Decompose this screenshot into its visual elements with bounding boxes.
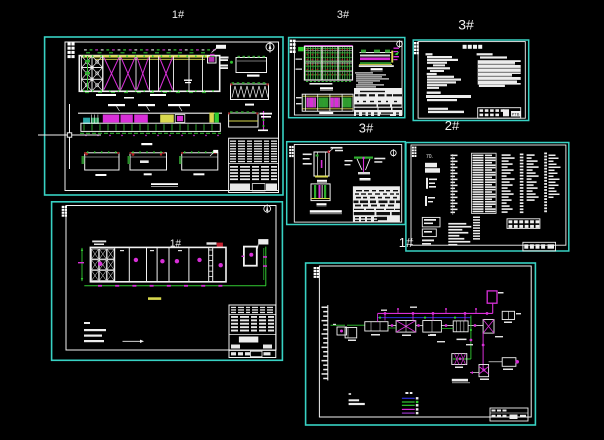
svg-text:3#: 3#	[359, 121, 374, 136]
svg-text:3#: 3#	[337, 9, 350, 21]
svg-text:70.: 70.	[426, 154, 433, 160]
svg-text:PTB: PTB	[512, 112, 520, 117]
svg-text:1#: 1#	[172, 9, 185, 21]
svg-text:3#: 3#	[458, 17, 474, 33]
